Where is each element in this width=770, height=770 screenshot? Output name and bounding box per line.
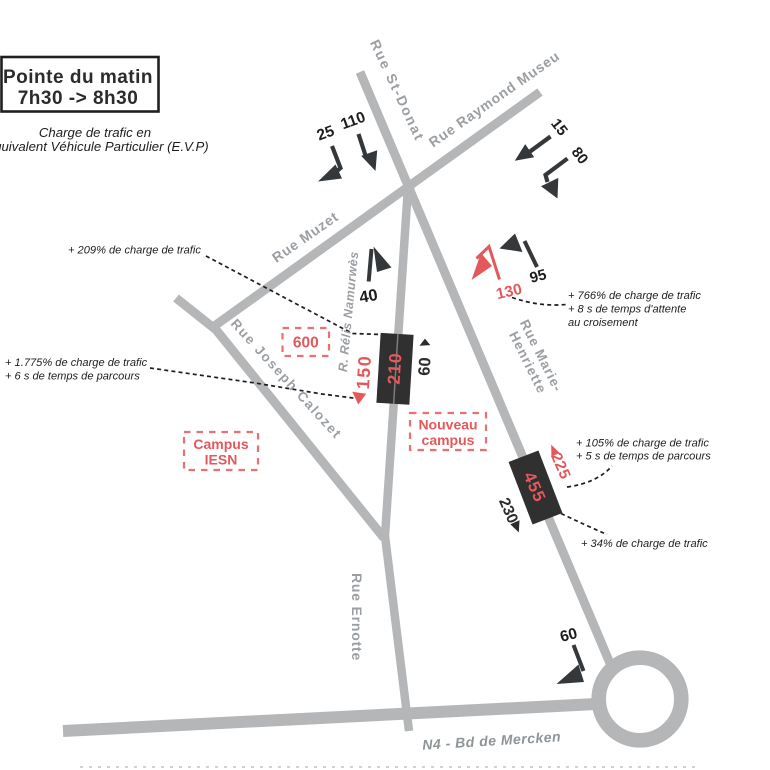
svg-text:+ 105% de charge de trafic: + 105% de charge de trafic bbox=[576, 438, 709, 450]
svg-text:Pointe du matin: Pointe du matin bbox=[3, 67, 153, 88]
svg-text:N4 - Bd de Mercken: N4 - Bd de Mercken bbox=[422, 728, 562, 752]
svg-text:Rue Raymond Museu: Rue Raymond Museu bbox=[426, 48, 563, 151]
svg-text:IESN: IESN bbox=[205, 452, 238, 468]
svg-text:+ 1.775% de charge de trafic: + 1.775% de charge de trafic bbox=[5, 357, 148, 369]
svg-text:60: 60 bbox=[415, 357, 434, 376]
svg-text:225: 225 bbox=[547, 450, 574, 482]
svg-text:Nouveau: Nouveau bbox=[418, 417, 477, 433]
svg-text:Charge de trafic en: Charge de trafic en bbox=[39, 125, 151, 140]
svg-text:+ 209% de charge de trafic: + 209% de charge de trafic bbox=[68, 245, 201, 257]
svg-text:80: 80 bbox=[568, 144, 592, 168]
svg-text:110: 110 bbox=[339, 109, 368, 134]
svg-text:150: 150 bbox=[353, 354, 375, 390]
svg-text:+ 6 s de temps de parcours: + 6 s de temps de parcours bbox=[5, 371, 140, 383]
svg-text:Rue Ernotte: Rue Ernotte bbox=[349, 573, 365, 661]
svg-text:Rue St-Donat: Rue St-Donat bbox=[367, 37, 428, 144]
svg-text:au croisement: au croisement bbox=[568, 317, 639, 329]
svg-text:15: 15 bbox=[547, 115, 571, 139]
svg-text:95: 95 bbox=[528, 266, 549, 287]
svg-text:210: 210 bbox=[384, 352, 406, 385]
svg-text:+ 8 s de temps d'attente: + 8 s de temps d'attente bbox=[568, 304, 686, 316]
svg-text:7h30 -> 8h30: 7h30 -> 8h30 bbox=[18, 88, 139, 109]
svg-text:40: 40 bbox=[358, 286, 379, 307]
svg-text:+ 5 s de temps de parcours: + 5 s de temps de parcours bbox=[576, 451, 711, 463]
svg-text:Campus: Campus bbox=[193, 436, 248, 452]
svg-text:campus: campus bbox=[422, 432, 475, 448]
svg-text:R. Rélis Namurwès: R. Rélis Namurwès bbox=[336, 251, 362, 373]
svg-text:+ 34% de charge de trafic: + 34% de charge de trafic bbox=[581, 538, 708, 550]
svg-text:60: 60 bbox=[558, 625, 579, 646]
svg-text:Équivalent Véhicule Particulie: Équivalent Véhicule Particulier (E.V.P) bbox=[0, 139, 209, 154]
svg-text:+ 766% de charge de trafic: + 766% de charge de trafic bbox=[568, 290, 701, 302]
svg-text:25: 25 bbox=[315, 122, 337, 144]
svg-text:600: 600 bbox=[293, 335, 319, 352]
